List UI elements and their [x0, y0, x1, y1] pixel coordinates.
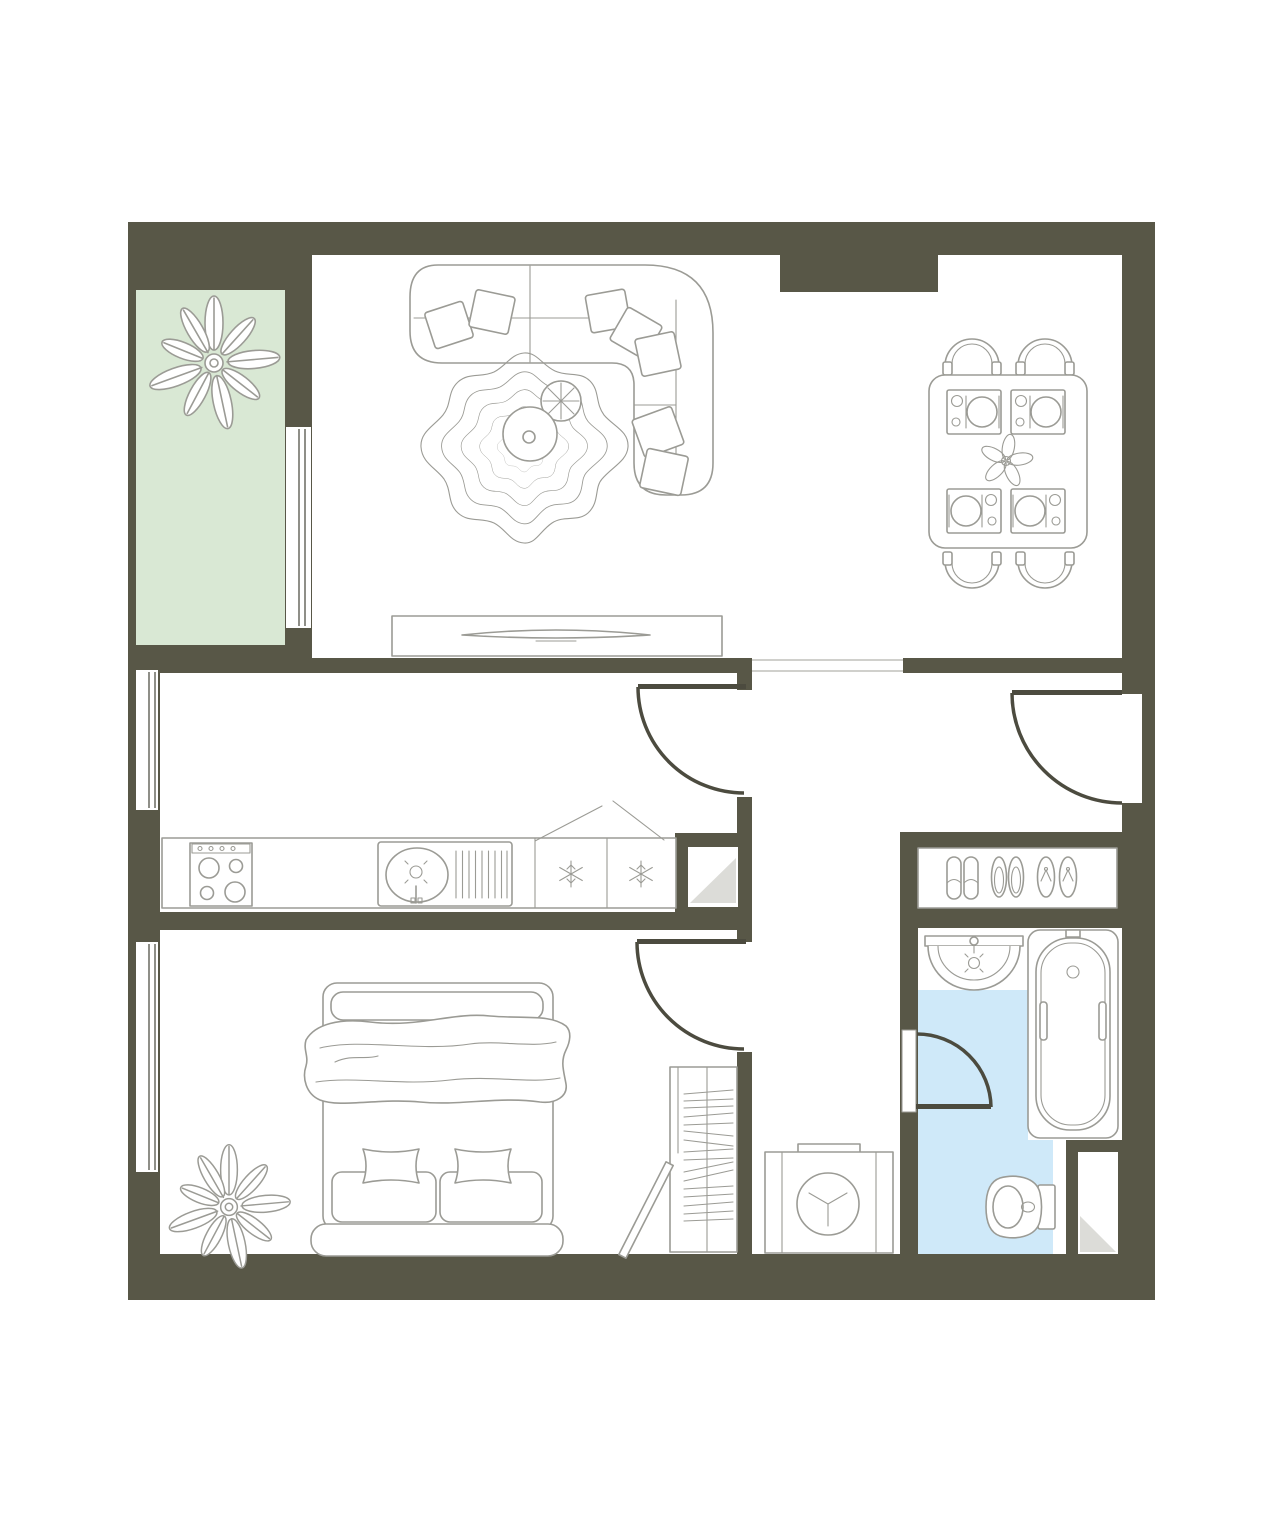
toilet	[986, 1176, 1055, 1238]
bedroom-door-opening	[737, 942, 752, 1052]
washing-machine	[765, 1144, 893, 1253]
coffee-table	[503, 407, 557, 461]
bathroom-vent-shaft	[1078, 1152, 1118, 1254]
bathtub	[1028, 930, 1118, 1138]
floor-plan-page	[0, 0, 1280, 1540]
entrance-door-opening	[1122, 694, 1142, 803]
headboard	[311, 1224, 563, 1256]
deco-pillow	[455, 1149, 511, 1183]
floor-plan-canvas	[0, 0, 1280, 1540]
shoe-rack	[918, 848, 1117, 908]
mattress-top	[331, 992, 543, 1020]
kitchen-door-opening	[737, 690, 752, 797]
bathroom-door-frame	[902, 1030, 916, 1112]
hallway-entry-floor	[752, 673, 1122, 832]
stove	[190, 843, 252, 906]
kitchen-sink	[378, 842, 512, 906]
wall-pillar	[780, 255, 938, 292]
kitchen-vent-shaft	[675, 833, 752, 912]
deco-pillow	[363, 1149, 419, 1183]
tv-console	[392, 616, 722, 656]
double-bed	[305, 983, 570, 1256]
